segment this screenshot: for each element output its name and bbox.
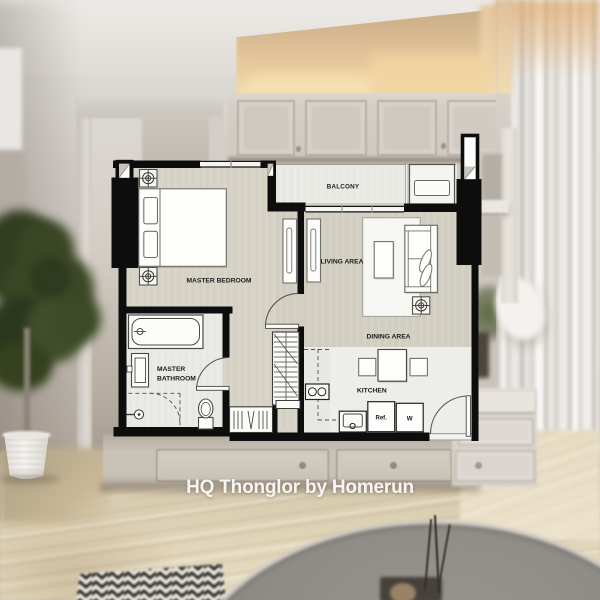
svg-text:LIVING AREA: LIVING AREA [321,259,364,266]
svg-text:BALCONY: BALCONY [327,184,360,191]
svg-text:W: W [407,416,413,423]
svg-text:Ref.: Ref. [376,416,388,422]
svg-text:MASTER: MASTER [157,366,185,373]
svg-text:BATHROOM: BATHROOM [157,376,196,383]
svg-text:DINING AREA: DINING AREA [367,334,411,341]
svg-text:MASTER BEDROOM: MASTER BEDROOM [186,278,251,285]
svg-text:KITCHEN: KITCHEN [357,387,387,394]
